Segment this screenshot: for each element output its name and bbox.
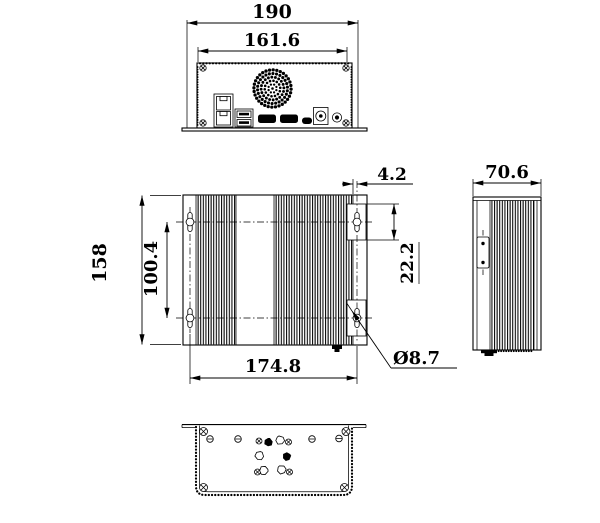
dim-text-side-width: 70.6 bbox=[485, 162, 529, 183]
usb-ports-icon bbox=[235, 109, 253, 127]
dim-boss-height: 22.2 bbox=[367, 204, 419, 284]
vesa-mount-cluster bbox=[254, 435, 293, 476]
slotted-screw-icon bbox=[309, 436, 316, 443]
technical-drawing: 190 161.6 bbox=[0, 0, 600, 523]
cross-screw-icon bbox=[256, 438, 262, 444]
cross-screw-icon bbox=[286, 439, 292, 445]
stamped-hole-icon bbox=[282, 452, 292, 462]
dc-jack-icon bbox=[314, 108, 329, 125]
ethernet-ports-icon bbox=[214, 94, 233, 127]
audio-jack-icon bbox=[332, 113, 341, 122]
slotted-screw-icon bbox=[336, 435, 343, 442]
dim-side-width: 70.6 bbox=[473, 162, 541, 183]
dim-text-hole-diameter: Ø8.7 bbox=[393, 348, 440, 369]
corner-screw-icon bbox=[200, 120, 206, 126]
corner-screw-icon bbox=[343, 120, 349, 126]
rear-view: 190 161.6 bbox=[182, 1, 367, 131]
front-button-icon bbox=[481, 350, 497, 356]
stamped-hole-icon bbox=[254, 450, 266, 462]
micro-usb-port-icon bbox=[302, 118, 312, 125]
corner-screw-icon bbox=[200, 428, 208, 436]
side-access-plate-icon bbox=[477, 230, 489, 275]
side-view: 70.6 bbox=[473, 162, 541, 356]
corner-screw-icon bbox=[200, 484, 208, 492]
bottom-view bbox=[182, 425, 366, 495]
slotted-screw-icon bbox=[235, 436, 242, 443]
corner-screw-icon bbox=[200, 65, 206, 71]
hdmi-port-icon bbox=[258, 115, 276, 124]
stamped-hole-icon bbox=[263, 437, 274, 448]
dim-text-hole-spacing-vertical: 100.4 bbox=[141, 241, 162, 297]
bottom-body-outline bbox=[200, 426, 349, 492]
slotted-screw-icon bbox=[207, 436, 214, 443]
heatsink-fins bbox=[274, 196, 353, 345]
dim-text-hole-spacing-horizontal: 174.8 bbox=[245, 356, 301, 377]
dim-fin-offset: 4.2 bbox=[342, 165, 413, 194]
hdmi-port-2-icon bbox=[280, 115, 298, 124]
corner-screw-icon bbox=[341, 484, 349, 492]
heatsink-fins bbox=[490, 201, 534, 351]
stamped-hole-icon bbox=[275, 435, 285, 445]
stamped-hole-icon bbox=[259, 466, 269, 476]
dim-text-depth: 158 bbox=[89, 243, 111, 283]
dim-text-boss-height: 22.2 bbox=[398, 242, 418, 283]
dim-text-overall-width: 190 bbox=[252, 1, 292, 23]
cross-screw-icon bbox=[287, 469, 293, 475]
dim-overall-width: 190 bbox=[187, 1, 358, 23]
mounting-flange bbox=[182, 128, 367, 131]
corner-screw-icon bbox=[343, 65, 349, 71]
fin-serration-outline bbox=[196, 427, 352, 495]
front-button-icon bbox=[332, 345, 342, 352]
technical-drawing-page: 190 161.6 bbox=[0, 0, 600, 523]
dim-hole-spacing-vertical: 100.4 bbox=[141, 222, 167, 318]
mounting-flange bbox=[182, 425, 366, 428]
plan-view: 158 100.4 174.8 4.2 22.2 bbox=[89, 165, 457, 384]
dim-body-width: 161.6 bbox=[198, 30, 347, 51]
heatsink-fins bbox=[196, 196, 236, 345]
stamped-hole-icon bbox=[276, 464, 287, 475]
dim-text-body-width: 161.6 bbox=[244, 30, 300, 51]
dim-text-fin-offset: 4.2 bbox=[377, 165, 407, 185]
corner-screw-icon bbox=[342, 428, 350, 436]
